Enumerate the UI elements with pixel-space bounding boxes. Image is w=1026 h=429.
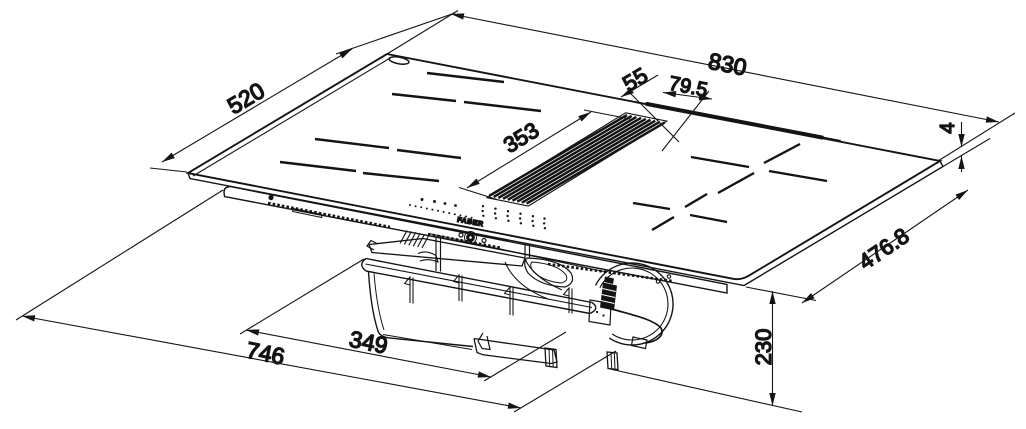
svg-text:230: 230 bbox=[751, 329, 776, 366]
svg-text:349: 349 bbox=[347, 326, 390, 359]
svg-text:55: 55 bbox=[618, 63, 652, 97]
svg-text:353: 353 bbox=[499, 117, 543, 158]
svg-text:4: 4 bbox=[937, 122, 959, 133]
svg-text:746: 746 bbox=[244, 337, 287, 370]
svg-text:79.5: 79.5 bbox=[667, 73, 709, 102]
svg-text:476.8: 476.8 bbox=[854, 223, 914, 275]
svg-text:830: 830 bbox=[706, 48, 749, 81]
svg-text:520: 520 bbox=[223, 77, 269, 119]
